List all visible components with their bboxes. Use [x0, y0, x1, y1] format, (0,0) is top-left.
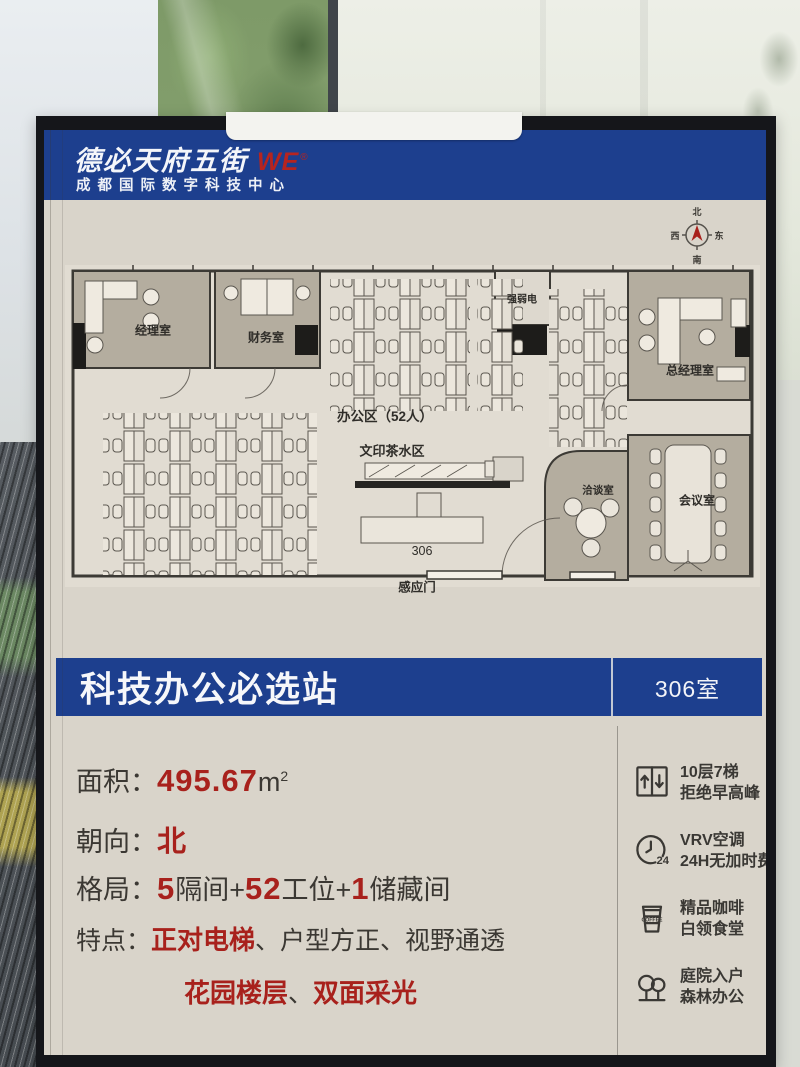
- label-room-number: 306: [412, 544, 433, 558]
- poster-mount-clip: [226, 112, 522, 140]
- amenity-hvac: 24 VRV空调 24H无加时费: [634, 830, 764, 886]
- spec-area-sup: 2: [280, 768, 288, 784]
- elevator-icon: [634, 764, 670, 800]
- spec-facing: 朝向：北: [76, 818, 186, 860]
- spec-layout: 格局：5隔间+52工位+1储藏间: [76, 868, 451, 907]
- amenity-coffee: COFFEE 精品咖啡 白领食堂: [634, 898, 764, 954]
- poster-face: 德必天府五街 WE ® 成都国际数字科技中心 北 东 南 西: [44, 130, 766, 1055]
- poster-board: 德必天府五街 WE ® 成都国际数字科技中心 北 东 南 西: [36, 116, 776, 1067]
- spec-features-label: 特点：: [76, 927, 151, 955]
- layout-seats-text: 工位+: [282, 875, 352, 905]
- layout-storage-count: 1: [351, 871, 369, 906]
- clock-24-icon: 24: [634, 832, 670, 868]
- spec-features-line1: 特点：正对电梯、户型方正、视野通透: [76, 920, 505, 957]
- amenities-divider: [617, 726, 618, 1055]
- header-band: 德必天府五街 WE ® 成都国际数字科技中心: [44, 130, 766, 200]
- clock-24-badge: 24: [657, 855, 670, 867]
- spec-area-unit: m: [258, 767, 281, 797]
- feature-shape-view: 、户型方正、视野通透: [255, 927, 505, 955]
- feature-daylight: 双面采光: [313, 978, 417, 1008]
- amenity-text: 10层7梯 拒绝早高峰: [680, 762, 760, 818]
- amenity-text: 庭院入户 森林办公: [680, 966, 744, 1022]
- coffee-badge: COFFEE: [642, 917, 663, 923]
- amenity-line1: 精品咖啡: [680, 898, 744, 919]
- spec-facing-label: 朝向：: [76, 827, 157, 857]
- spec-layout-label: 格局：: [76, 875, 157, 905]
- feature-separator: 、: [288, 980, 313, 1008]
- brand-logo: 德必天府五街 WE ®: [74, 139, 308, 171]
- label-office-area: 办公区（52人）: [337, 405, 433, 425]
- compass-icon: 北 东 南 西: [665, 201, 729, 265]
- amenity-line1: 10层7梯: [680, 762, 760, 783]
- layout-rooms-count: 5: [157, 871, 175, 906]
- amenity-elevator: 10层7梯 拒绝早高峰: [634, 762, 764, 818]
- amenity-line1: 庭院入户: [680, 966, 744, 987]
- spec-area: 面积：495.67m2: [76, 760, 288, 799]
- amenity-text: 精品咖啡 白领食堂: [680, 898, 744, 954]
- spec-area-value: 495.67: [157, 763, 258, 798]
- amenity-line2: 拒绝早高峰: [680, 783, 760, 804]
- room-label-manager: 经理室: [135, 322, 171, 339]
- compass-needle: [692, 225, 703, 241]
- brand-name: 德必天府五街: [74, 139, 248, 178]
- spec-area-label: 面积：: [76, 767, 157, 797]
- spec-features-line2: 花园楼层、双面采光: [184, 973, 417, 1010]
- brand-we-mark: WE: [257, 148, 299, 177]
- photo-background: 德必天府五街 WE ® 成都国际数字科技中心 北 东 南 西: [0, 0, 800, 1067]
- compass-north-label: 北: [692, 206, 701, 217]
- label-sensor-door: 感应门: [398, 577, 436, 596]
- feature-elevator: 正对电梯: [151, 925, 255, 955]
- compass-west-label: 西: [670, 231, 679, 241]
- brand-subtitle: 成都国际数字科技中心: [76, 174, 291, 195]
- compass-south-label: 南: [692, 254, 701, 265]
- amenity-line2: 森林办公: [680, 987, 744, 1008]
- room-number-badge: 306室: [613, 658, 762, 716]
- room-label-gm: 总经理室: [666, 362, 714, 379]
- room-label-negotiation: 洽谈室: [582, 483, 614, 498]
- registered-icon: ®: [300, 152, 307, 163]
- amenity-garden: 庭院入户 森林办公: [634, 966, 764, 1022]
- trees-icon: [634, 968, 670, 1004]
- banner-title: 科技办公必选站: [80, 662, 339, 713]
- poster-seam-left2: [62, 130, 63, 1055]
- amenity-line1: VRV空调: [680, 830, 766, 851]
- poster-seam-left: [50, 130, 51, 1055]
- amenity-text: VRV空调 24H无加时费: [680, 830, 766, 886]
- layout-seats-count: 52: [245, 871, 281, 906]
- room-label-meeting: 会议室: [679, 492, 715, 509]
- amenity-line2: 24H无加时费: [680, 851, 766, 872]
- title-banner: 科技办公必选站 306室: [56, 658, 762, 716]
- room-label-electrical: 强弱电: [507, 291, 537, 306]
- compass-east-label: 东: [714, 230, 723, 241]
- coffee-icon: COFFEE: [634, 900, 670, 936]
- feature-garden-floor: 花园楼层: [184, 978, 288, 1008]
- spec-facing-value: 北: [157, 826, 186, 858]
- label-print-tea: 文印茶水区: [359, 441, 424, 460]
- amenity-line2: 白领食堂: [680, 919, 744, 940]
- room-label-finance: 财务室: [248, 329, 284, 346]
- layout-storage-text: 储藏间: [370, 875, 451, 905]
- layout-rooms-text: 隔间+: [175, 875, 245, 905]
